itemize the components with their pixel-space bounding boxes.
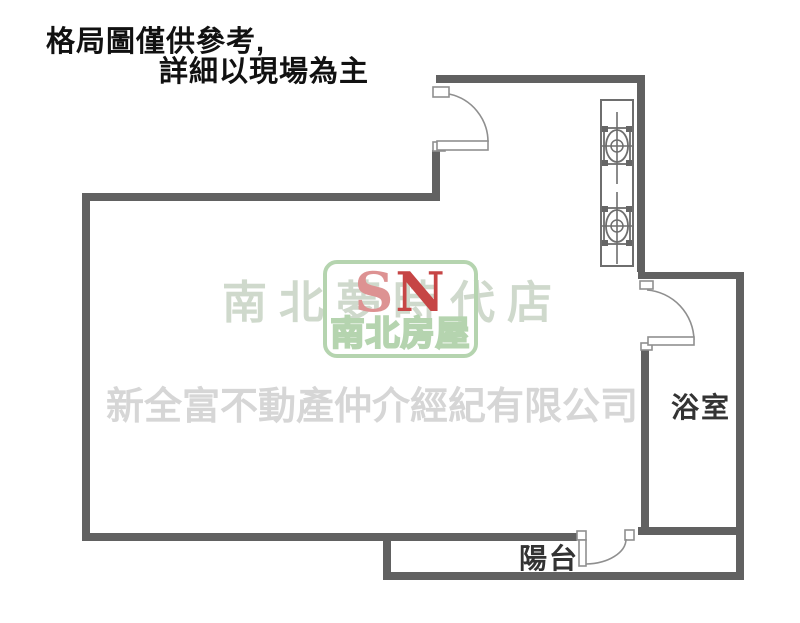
balcony-door bbox=[577, 530, 634, 566]
bathroom-label: 浴室 bbox=[671, 394, 731, 422]
stove-burner-top bbox=[600, 112, 634, 184]
disclaimer-line-1: 格局圖僅供參考, bbox=[46, 28, 265, 57]
stove-burner-bottom bbox=[600, 192, 634, 264]
disclaimer-line-2: 詳細以現場為主 bbox=[159, 58, 369, 87]
balcony-label: 陽台 bbox=[519, 545, 579, 573]
plan-drawing bbox=[0, 0, 800, 623]
floorplan-canvas: 南北夢時代店 新全富不動產仲介經紀有限公司 SN 南北房屋 bbox=[0, 0, 800, 623]
bathroom-door bbox=[640, 281, 694, 350]
stove bbox=[600, 100, 634, 266]
entry-door bbox=[433, 87, 488, 151]
